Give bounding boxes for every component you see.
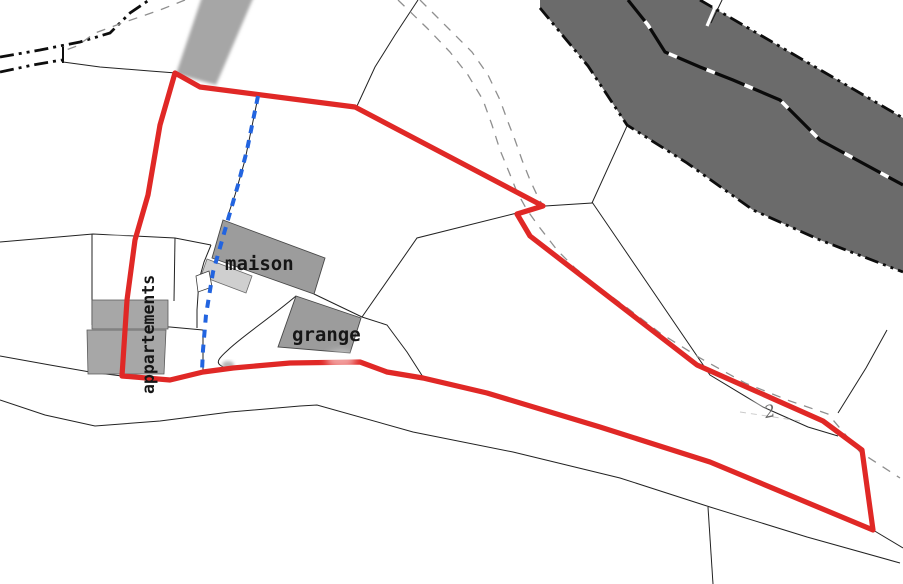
label-grange: grange [292,324,361,346]
map-canvas: maison grange appartements 2 [0,0,903,584]
white-fade-grange [326,351,356,369]
parcel-line-road-to-vertex [545,126,627,206]
road-branch-line [708,507,713,584]
main-road-band [540,0,903,272]
road-edge-lower [0,400,900,563]
parcel-line-left-inner [174,238,175,301]
label-appartements: appartements [139,275,158,394]
parcel-line-to-red-corner [63,62,176,73]
parcel-line-top-middle [357,0,418,106]
boundary-dashdot-upper [0,0,152,57]
label-maison: maison [225,253,294,275]
parcel-line-sliver [592,202,838,436]
footpath-dashed-topleft [66,0,185,50]
parcel-line-right [838,330,887,413]
white-fade-number [748,400,766,412]
parcel-line-bottom-right [873,530,903,548]
cadastral-map: maison grange appartements 2 [0,0,903,584]
secondary-road-band [176,0,255,85]
boundary-dashdot-lower [0,60,62,72]
parcel-line-middle [362,213,517,317]
